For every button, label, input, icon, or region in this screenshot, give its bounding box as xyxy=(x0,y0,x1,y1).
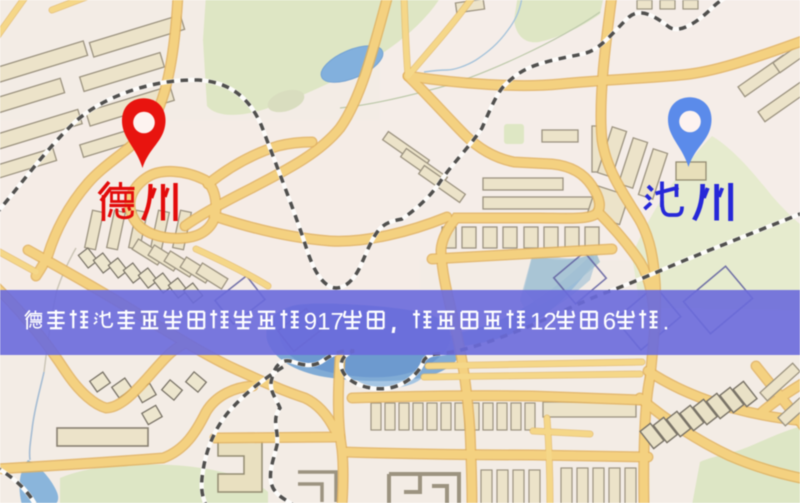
svg-text:12: 12 xyxy=(530,309,557,336)
svg-text:.: . xyxy=(663,309,670,336)
svg-text:917: 917 xyxy=(304,309,344,336)
svg-text:6: 6 xyxy=(603,309,616,336)
